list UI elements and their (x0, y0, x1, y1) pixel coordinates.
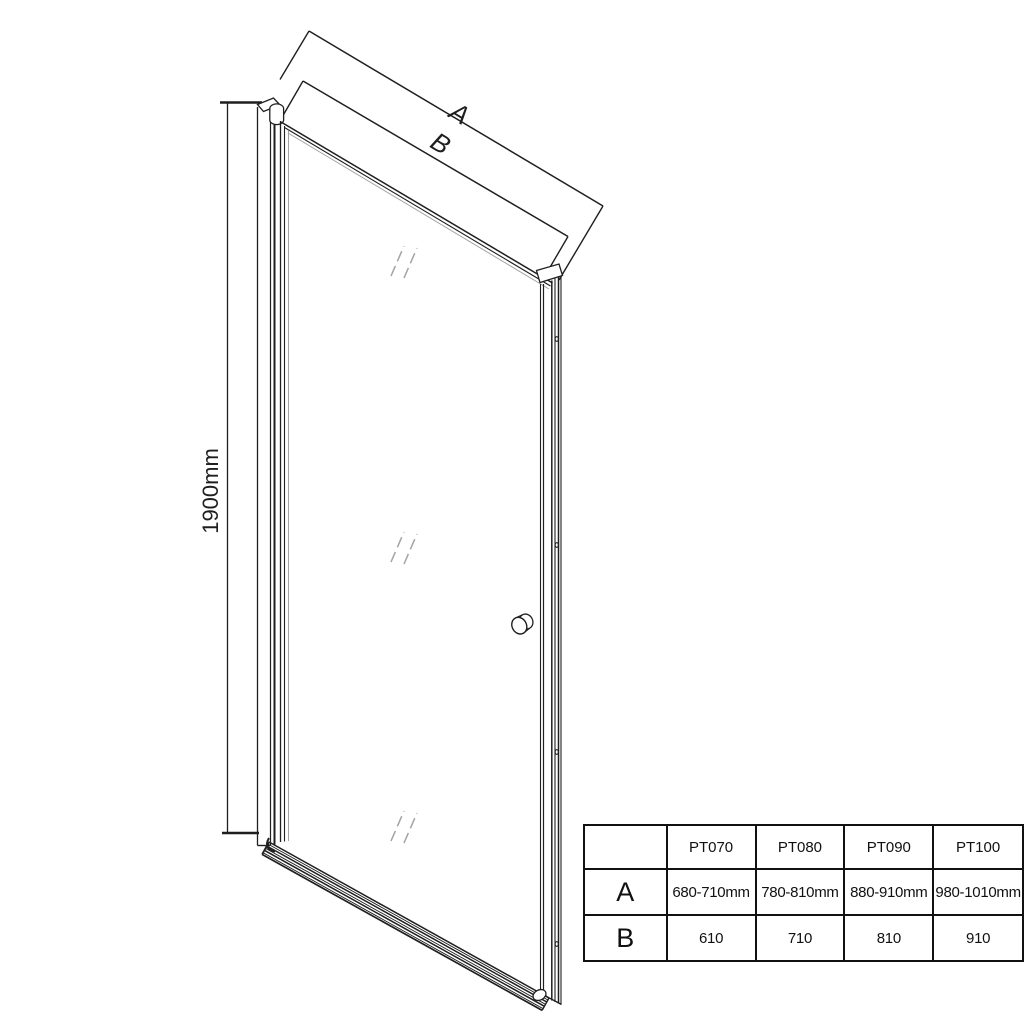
dimension-height: 1900mm (198, 103, 262, 834)
spec-table-col-header: PT080 (756, 825, 845, 869)
bottom-rail (262, 842, 549, 1010)
dimension-b: B (281, 81, 568, 281)
glass-panel (281, 121, 563, 842)
spec-table-col-header: PT070 (667, 825, 756, 869)
spec-table-row-b: B 610 710 810 910 (584, 915, 1023, 961)
spec-table-cell: 680-710mm (667, 869, 756, 915)
handle-side-profile (541, 276, 562, 1005)
spec-table-col-header: PT100 (933, 825, 1023, 869)
dimension-height-label: 1900mm (198, 448, 223, 534)
spec-table-cell: 980-1010mm (933, 869, 1023, 915)
spec-table-cell: 780-810mm (756, 869, 845, 915)
spec-table-row-a: A 680-710mm 780-810mm 880-910mm 980-1010… (584, 869, 1023, 915)
dimension-b-ext-left (281, 81, 303, 119)
spec-table-cell: 610 (667, 915, 756, 961)
spec-table-row-label: A (584, 869, 667, 915)
spec-table: PT070 PT080 PT090 PT100 A 680-710mm 780-… (583, 824, 1024, 962)
wall-profile (258, 107, 276, 852)
spec-table-cell: 910 (933, 915, 1023, 961)
spec-table-row-label: B (584, 915, 667, 961)
glass-shine-marks (391, 246, 417, 843)
door-knob (509, 611, 536, 636)
page: 1900mm A B (0, 0, 1024, 1024)
dimension-a-ext-left (280, 31, 309, 80)
door-knob-face (509, 615, 530, 637)
spec-table-col-header: PT090 (844, 825, 933, 869)
spec-table-corner-cell (584, 825, 667, 869)
dimension-a-ext-right (559, 206, 603, 280)
spec-table-cell: 710 (756, 915, 845, 961)
spec-table-header-row: PT070 PT080 PT090 PT100 (584, 825, 1023, 869)
spec-table-cell: 880-910mm (844, 869, 933, 915)
spec-table-cell: 810 (844, 915, 933, 961)
